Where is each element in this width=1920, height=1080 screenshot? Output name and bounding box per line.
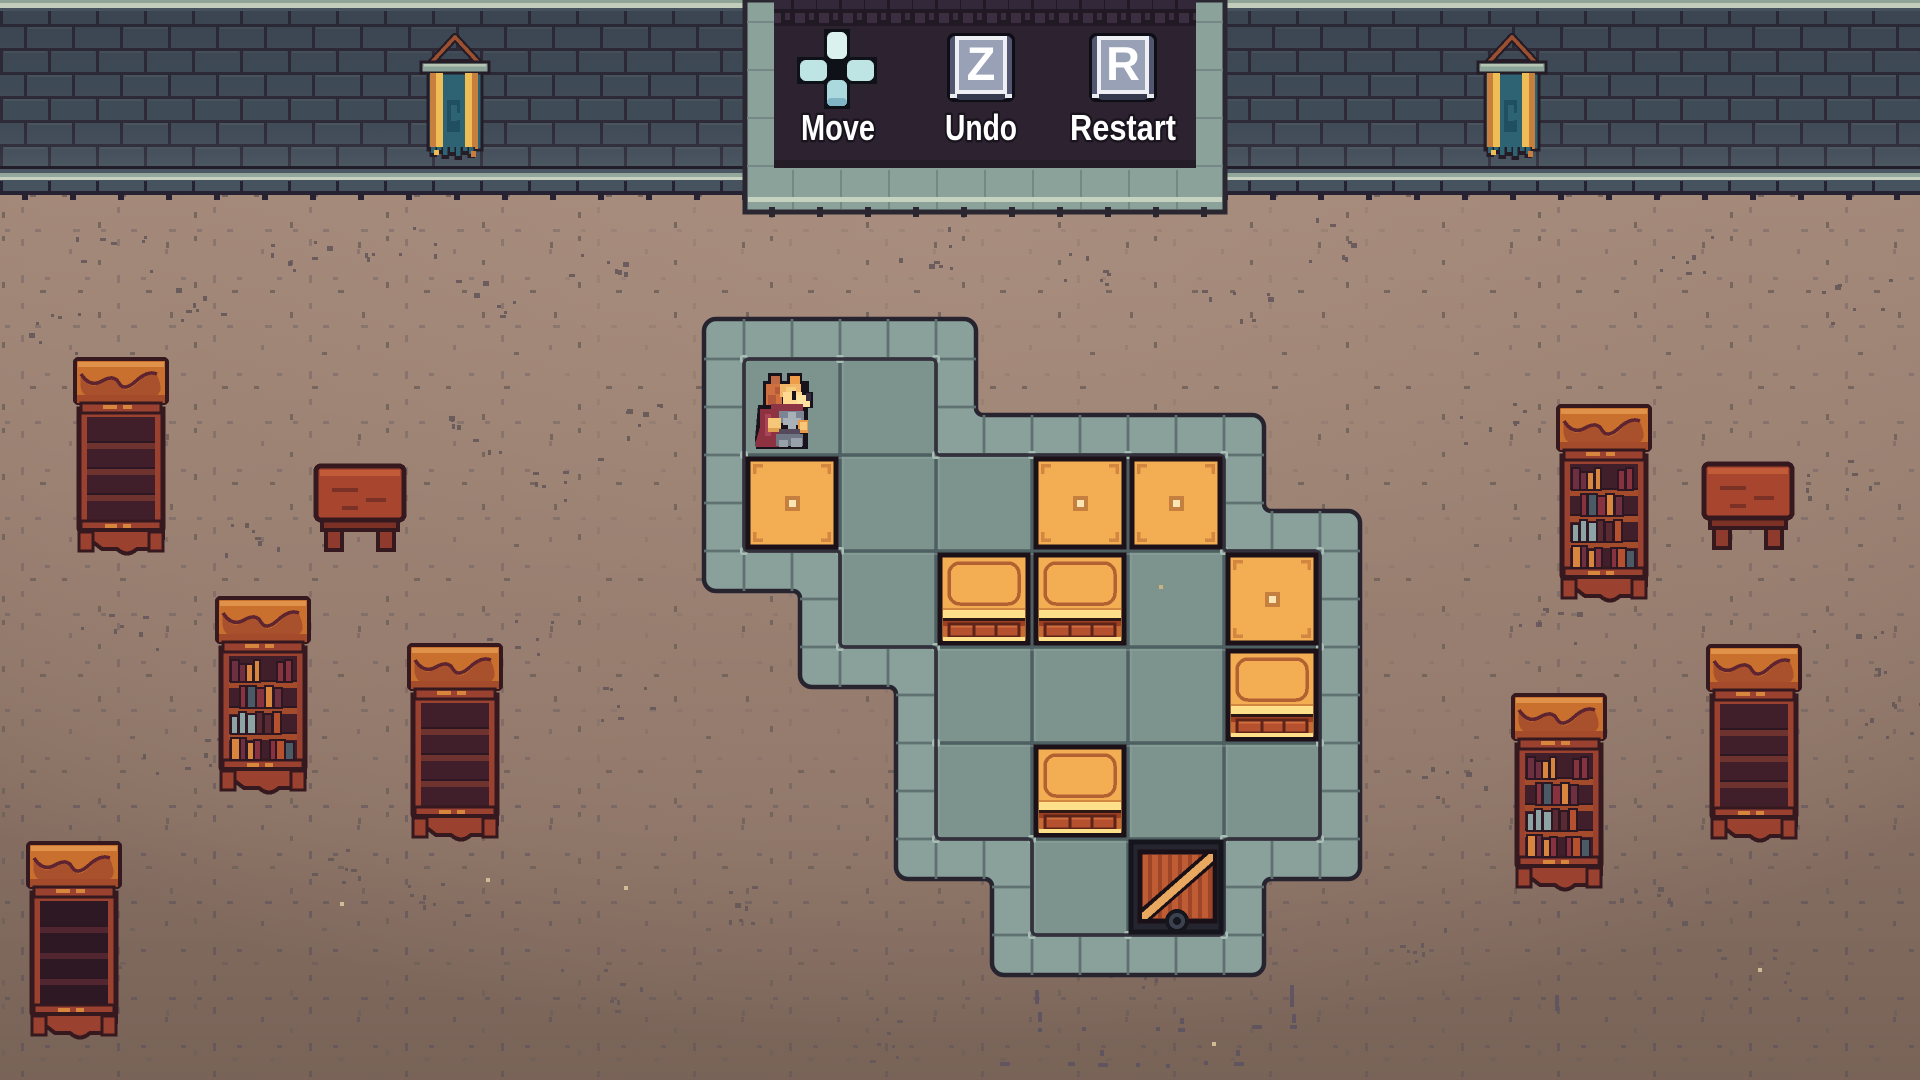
svg-text:Restart: Restart [1070,107,1176,148]
svg-text:Move: Move [801,107,875,148]
svg-text:Undo: Undo [945,107,1017,148]
svg-text:R: R [1106,37,1140,90]
svg-text:Z: Z [967,37,996,90]
